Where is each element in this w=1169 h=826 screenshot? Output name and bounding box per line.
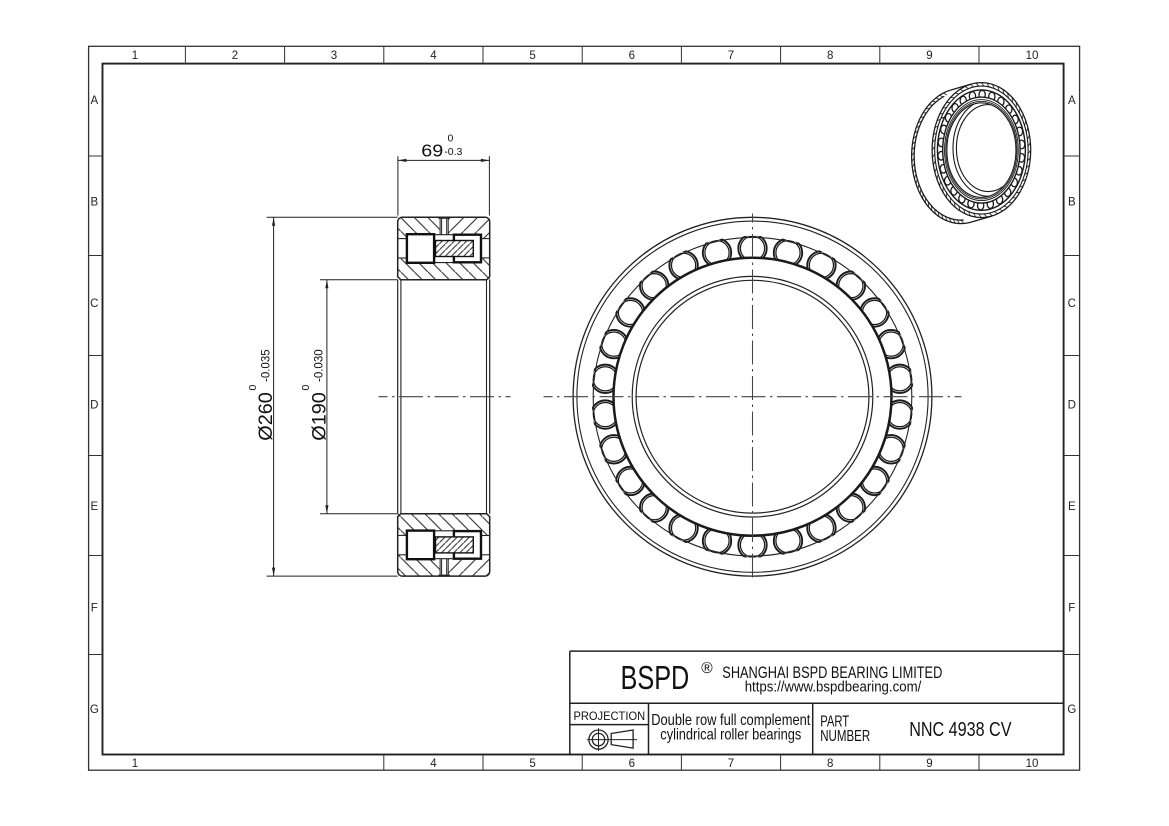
svg-text:F: F xyxy=(1068,602,1075,614)
svg-text:D: D xyxy=(1068,399,1076,411)
svg-text:6: 6 xyxy=(629,50,635,62)
svg-text:9: 9 xyxy=(926,758,932,770)
svg-text:E: E xyxy=(90,501,98,513)
svg-text:1: 1 xyxy=(132,758,138,770)
svg-text:-0.035: -0.035 xyxy=(260,349,272,382)
svg-text:D: D xyxy=(90,399,98,411)
svg-text:cylindrical roller bearings: cylindrical roller bearings xyxy=(660,727,801,744)
svg-text:5: 5 xyxy=(529,50,535,62)
svg-text:2: 2 xyxy=(232,50,238,62)
svg-text:B: B xyxy=(1068,196,1076,208)
svg-text:5: 5 xyxy=(529,758,535,770)
svg-text:®: ® xyxy=(701,660,713,677)
svg-text:-0.3: -0.3 xyxy=(444,146,462,158)
svg-text:1: 1 xyxy=(132,50,138,62)
svg-text:BSPD: BSPD xyxy=(621,659,690,696)
svg-text:F: F xyxy=(91,602,98,614)
svg-text:C: C xyxy=(1068,298,1076,310)
svg-text:4: 4 xyxy=(430,758,437,770)
svg-text:8: 8 xyxy=(827,758,833,770)
svg-text:Ø190: Ø190 xyxy=(308,392,330,441)
svg-text:NUMBER: NUMBER xyxy=(820,728,870,745)
svg-text:7: 7 xyxy=(728,50,734,62)
svg-text:10: 10 xyxy=(1026,758,1039,770)
svg-text:9: 9 xyxy=(926,50,932,62)
svg-text:7: 7 xyxy=(728,758,734,770)
svg-text:NNC 4938 CV: NNC 4938 CV xyxy=(909,718,1012,741)
svg-text:PROJECTION: PROJECTION xyxy=(573,709,645,723)
svg-text:A: A xyxy=(1068,95,1076,107)
svg-text:0: 0 xyxy=(448,132,454,144)
svg-text:G: G xyxy=(1067,704,1076,716)
svg-text:C: C xyxy=(90,298,98,310)
svg-text:0: 0 xyxy=(300,385,312,391)
svg-text:https://www.bspdbearing.com/: https://www.bspdbearing.com/ xyxy=(745,678,922,695)
svg-text:3: 3 xyxy=(331,50,337,62)
svg-text:E: E xyxy=(1068,501,1076,513)
svg-text:8: 8 xyxy=(827,50,833,62)
svg-text:-0.030: -0.030 xyxy=(314,349,326,382)
svg-text:B: B xyxy=(90,196,98,208)
svg-text:A: A xyxy=(90,95,98,107)
svg-text:Ø260: Ø260 xyxy=(255,392,277,441)
svg-text:G: G xyxy=(90,704,99,716)
svg-text:10: 10 xyxy=(1026,50,1039,62)
svg-text:6: 6 xyxy=(629,758,635,770)
svg-text:69: 69 xyxy=(421,140,443,160)
svg-text:4: 4 xyxy=(430,50,437,62)
svg-text:0: 0 xyxy=(247,385,259,391)
